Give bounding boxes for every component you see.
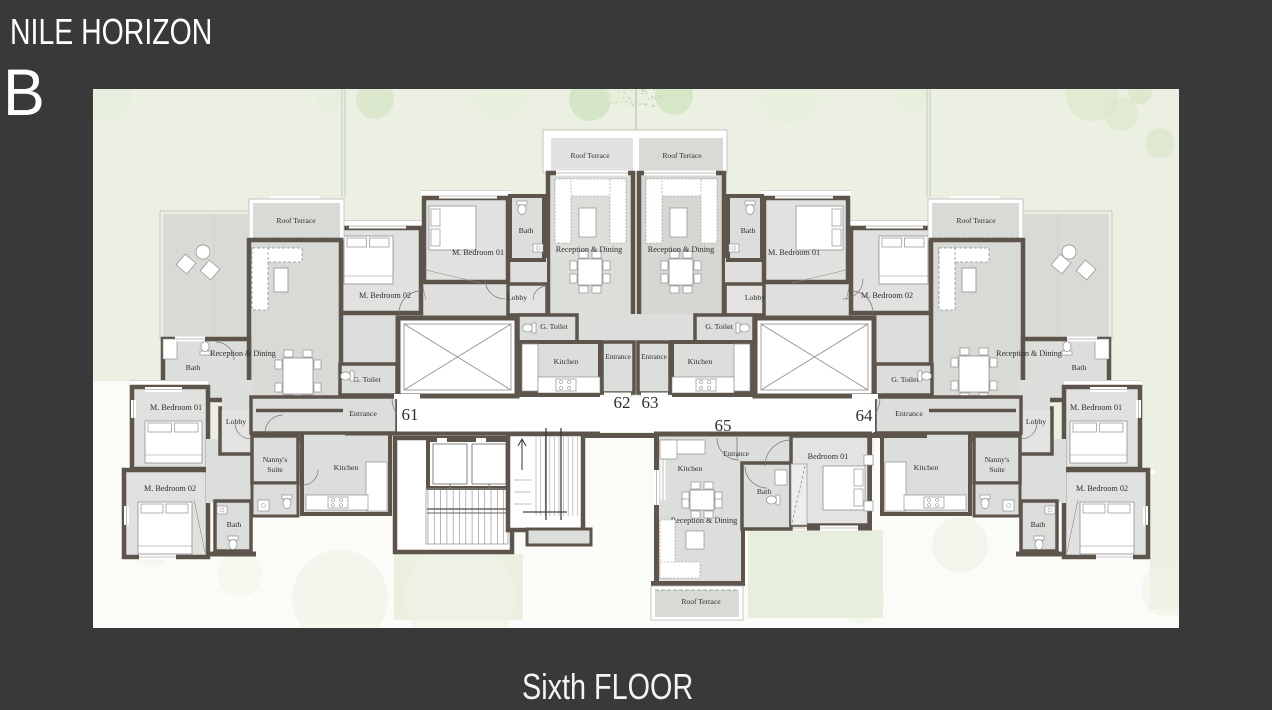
- svg-text:G. Toilet: G. Toilet: [540, 322, 568, 331]
- svg-text:Bedroom 01: Bedroom 01: [808, 452, 849, 461]
- svg-text:Lobby: Lobby: [226, 417, 246, 426]
- svg-text:G. Toilet: G. Toilet: [705, 322, 733, 331]
- svg-text:Suite: Suite: [267, 465, 283, 474]
- svg-text:Entrance: Entrance: [895, 409, 923, 418]
- svg-text:Reception & Dining: Reception & Dining: [556, 245, 622, 254]
- svg-text:M. Bedroom 01: M. Bedroom 01: [452, 248, 504, 257]
- svg-text:Kitchen: Kitchen: [688, 357, 713, 366]
- svg-text:Kitchen: Kitchen: [678, 464, 703, 473]
- svg-text:Roof Terrace: Roof Terrace: [662, 151, 702, 160]
- svg-text:Kitchen: Kitchen: [554, 357, 579, 366]
- svg-text:Lobby: Lobby: [507, 293, 527, 302]
- svg-text:Suite: Suite: [989, 465, 1005, 474]
- svg-text:Reception & Dining: Reception & Dining: [648, 245, 714, 254]
- svg-text:Lobby: Lobby: [1026, 417, 1046, 426]
- svg-text:Roof Terrace: Roof Terrace: [570, 151, 610, 160]
- svg-text:Kitchen: Kitchen: [914, 463, 939, 472]
- svg-text:Entrance: Entrance: [641, 353, 667, 361]
- svg-text:M. Bedroom 02: M. Bedroom 02: [861, 291, 913, 300]
- svg-text:M. Bedroom 01: M. Bedroom 01: [768, 248, 820, 257]
- svg-text:Reception & Dining: Reception & Dining: [996, 349, 1062, 358]
- svg-text:Roof Terrace: Roof Terrace: [276, 216, 316, 225]
- svg-text:Lobby: Lobby: [745, 293, 765, 302]
- svg-text:M. Bedroom 01: M. Bedroom 01: [1070, 403, 1122, 412]
- svg-text:Roof Terrace: Roof Terrace: [681, 597, 721, 606]
- svg-text:Roof Terrace: Roof Terrace: [956, 216, 996, 225]
- svg-text:Bath: Bath: [227, 520, 242, 529]
- svg-text:Entrance: Entrance: [349, 409, 377, 418]
- svg-text:62: 62: [614, 393, 631, 412]
- svg-text:G. Toilet: G. Toilet: [891, 375, 919, 384]
- svg-text:64: 64: [856, 406, 874, 425]
- svg-text:Bath: Bath: [741, 226, 756, 235]
- svg-text:Kitchen: Kitchen: [334, 463, 359, 472]
- svg-text:Nanny's: Nanny's: [263, 455, 288, 464]
- svg-text:M. Bedroom 02: M. Bedroom 02: [1076, 484, 1128, 493]
- svg-text:G. Toilet: G. Toilet: [353, 375, 381, 384]
- svg-text:61: 61: [402, 405, 419, 424]
- svg-text:Entrance: Entrance: [605, 353, 631, 361]
- svg-text:Bath: Bath: [757, 487, 772, 496]
- svg-text:Bath: Bath: [1031, 520, 1046, 529]
- svg-text:Bath: Bath: [186, 363, 201, 372]
- svg-text:Bath: Bath: [519, 226, 534, 235]
- svg-text:M. Bedroom 01: M. Bedroom 01: [150, 403, 202, 412]
- svg-text:Nanny's: Nanny's: [985, 455, 1010, 464]
- svg-text:M. Bedroom 02: M. Bedroom 02: [144, 484, 196, 493]
- svg-text:M. Bedroom 02: M. Bedroom 02: [359, 291, 411, 300]
- svg-text:Reception & Dining: Reception & Dining: [210, 349, 276, 358]
- svg-text:Bath: Bath: [1072, 363, 1087, 372]
- svg-text:63: 63: [642, 393, 659, 412]
